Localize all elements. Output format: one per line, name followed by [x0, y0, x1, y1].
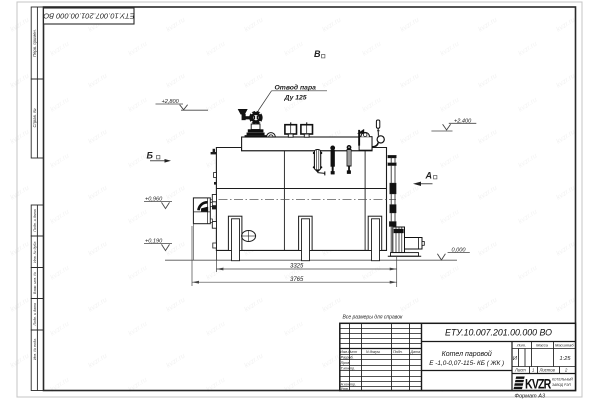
svg-text:Справ. №: Справ. № [32, 108, 37, 127]
svg-text:3765: 3765 [290, 277, 304, 283]
svg-text:1: 1 [532, 368, 534, 373]
svg-text:Инв. № дубл.: Инв. № дубл. [33, 241, 37, 263]
svg-text:В: В [314, 49, 321, 59]
svg-text:3325: 3325 [290, 264, 304, 270]
svg-text:Котел паровой: Котел паровой [442, 350, 492, 358]
svg-text:+0,190: +0,190 [145, 239, 163, 245]
svg-text:Разраб.: Разраб. [341, 355, 354, 359]
svg-text:Б: Б [147, 151, 154, 161]
svg-text:Все размеры для справок: Все размеры для справок [343, 315, 404, 321]
svg-text:Формат А3: Формат А3 [515, 394, 546, 400]
svg-text:Е -1,0-0,07-115- КБ ( ЖК ): Е -1,0-0,07-115- КБ ( ЖК ) [429, 360, 504, 367]
svg-text:Листов: Листов [539, 368, 556, 373]
svg-text:ЕТУ.10.007.201.00.000 ВО: ЕТУ.10.007.201.00.000 ВО [445, 328, 552, 338]
svg-text:Перв. примен.: Перв. примен. [32, 29, 37, 57]
svg-text:Подп. и дата: Подп. и дата [33, 209, 37, 232]
svg-text:+0,960: +0,960 [145, 197, 163, 203]
svg-text:Отвод пара: Отвод пара [275, 84, 317, 92]
svg-text:Масштаб: Масштаб [555, 343, 574, 348]
svg-text:ЕТУ.10.007.201.00.000 ВО: ЕТУ.10.007.201.00.000 ВО [43, 11, 134, 20]
svg-text:+2,800: +2,800 [162, 99, 180, 105]
svg-text:N докум.: N докум. [366, 350, 381, 354]
svg-text:+2,400: +2,400 [454, 118, 472, 124]
svg-text:Дата: Дата [410, 350, 420, 354]
svg-text:Ду 125: Ду 125 [284, 95, 307, 102]
svg-text:И: И [513, 356, 517, 362]
svg-text:Н.контр.: Н.контр. [341, 383, 356, 387]
svg-text:1:25: 1:25 [560, 356, 572, 362]
svg-text:А: А [425, 171, 433, 181]
svg-text:Инв. № подл.: Инв. № подл. [33, 338, 37, 360]
svg-text:Пров.: Пров. [341, 361, 350, 365]
svg-text:Изм.Лист: Изм.Лист [340, 350, 357, 354]
svg-text:KVZR: KVZR [525, 377, 551, 392]
svg-text:Подп.: Подп. [393, 350, 403, 354]
svg-text:КОТЕЛЬНЫЙ: КОТЕЛЬНЫЙ [552, 378, 573, 382]
svg-text:Т.контр.: Т.контр. [341, 367, 356, 371]
svg-text:ЗАВОД РЭП: ЗАВОД РЭП [552, 383, 572, 387]
svg-text:0,000: 0,000 [452, 247, 467, 253]
svg-text:Подп. и дата: Подп. и дата [33, 303, 37, 326]
svg-text:Утв.: Утв. [341, 387, 349, 391]
svg-text:Лист: Лист [514, 368, 526, 373]
svg-text:Лит.: Лит. [516, 343, 526, 348]
svg-text:Взам. инв. №: Взам. инв. № [33, 272, 37, 294]
svg-text:Масса: Масса [536, 343, 549, 348]
